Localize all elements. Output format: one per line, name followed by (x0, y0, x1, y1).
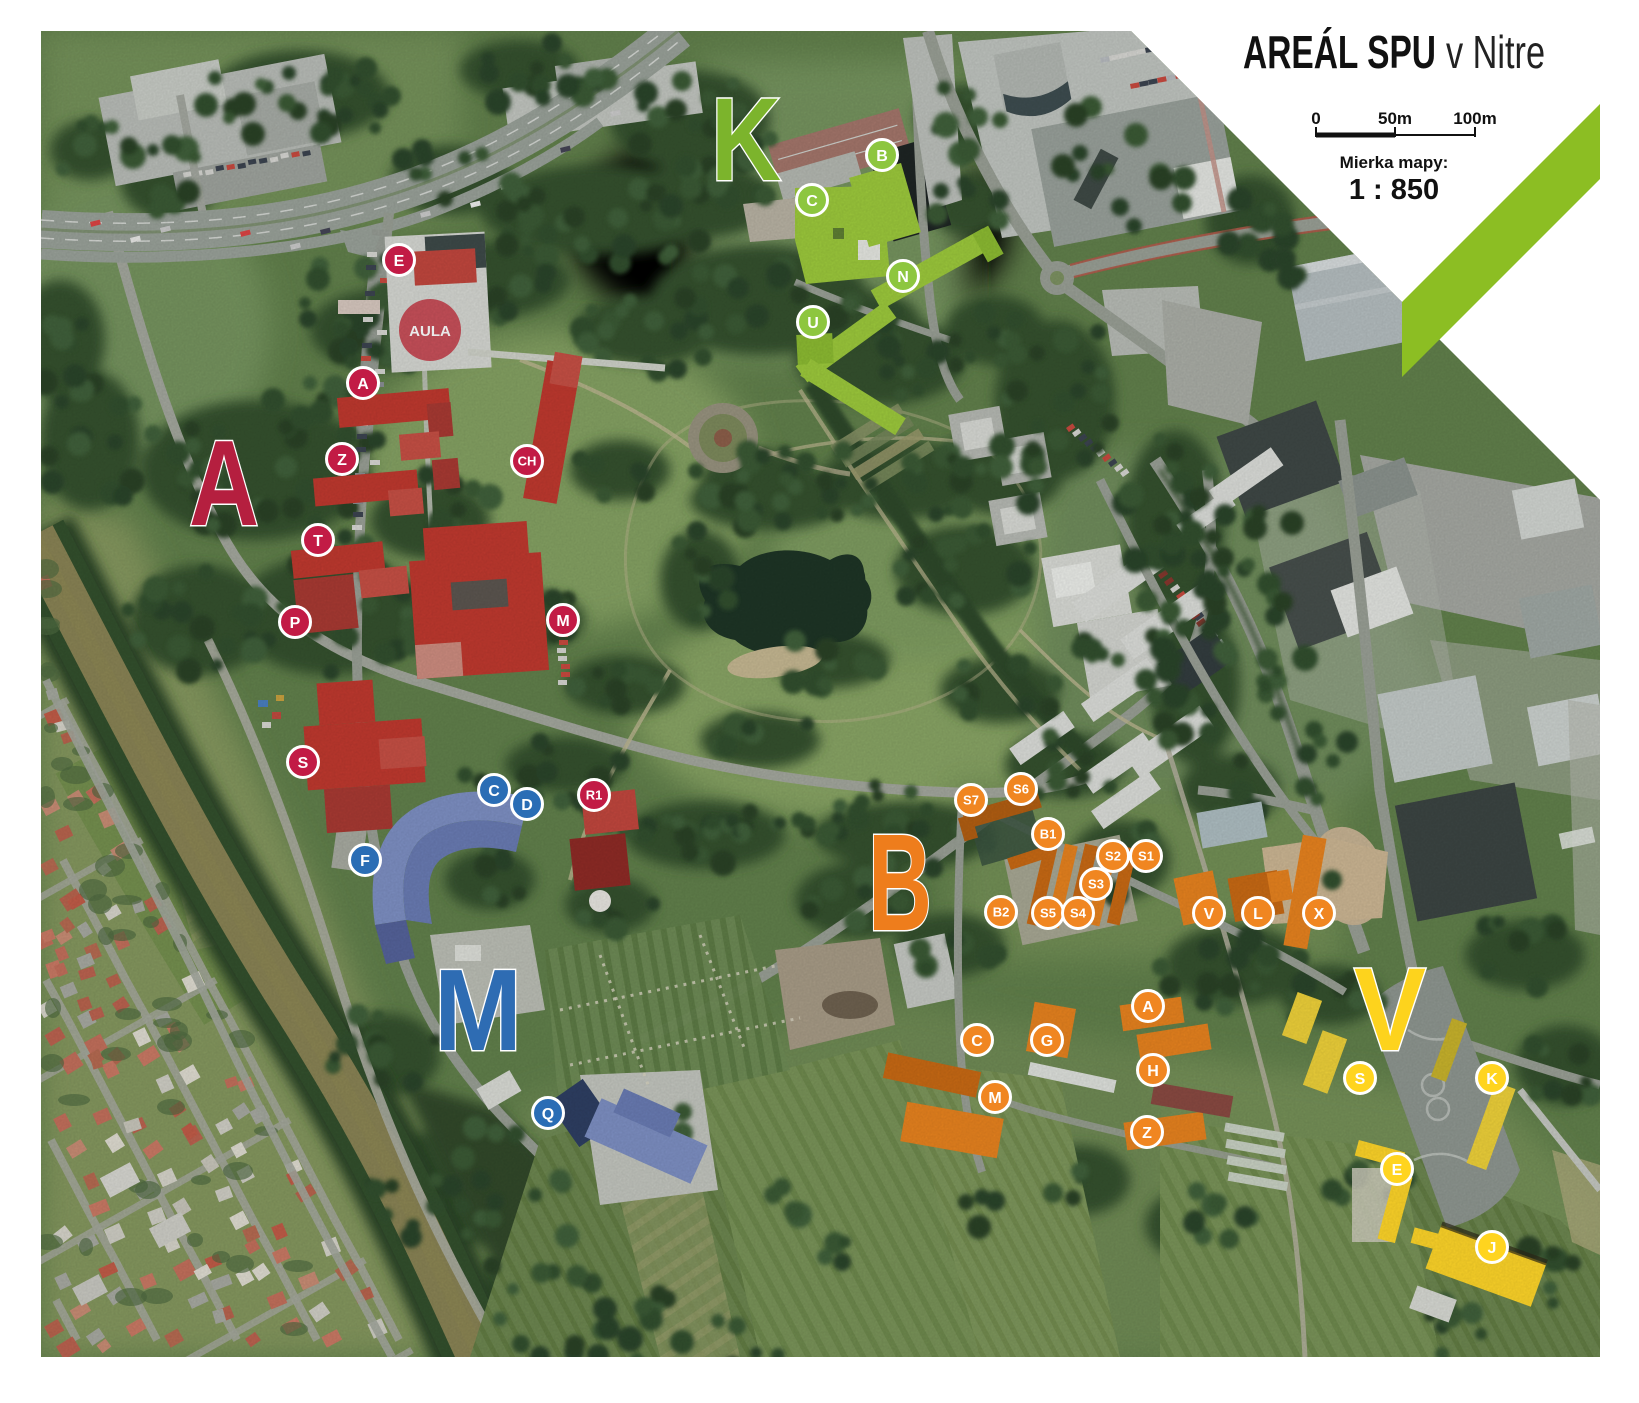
svg-text:S1: S1 (1138, 849, 1154, 864)
svg-text:C: C (806, 193, 818, 210)
svg-text:A: A (357, 376, 369, 393)
svg-text:AREÁL SPU: AREÁL SPU (1243, 26, 1436, 78)
svg-text:S7: S7 (963, 793, 979, 808)
svg-text:U: U (807, 315, 819, 332)
svg-text:S2: S2 (1105, 849, 1121, 864)
svg-text:V: V (1354, 944, 1426, 1076)
svg-text:K: K (711, 74, 781, 206)
svg-text:M: M (434, 945, 522, 1075)
svg-text:S5: S5 (1040, 906, 1056, 921)
svg-text:100m: 100m (1453, 109, 1496, 128)
svg-text:C: C (488, 783, 500, 800)
svg-text:B: B (868, 806, 932, 960)
svg-text:K: K (1486, 1071, 1498, 1088)
svg-text:P: P (290, 615, 301, 632)
svg-text:D: D (521, 797, 533, 814)
svg-text:1 : 850: 1 : 850 (1349, 174, 1439, 206)
svg-text:0: 0 (1311, 109, 1320, 128)
svg-text:S4: S4 (1070, 906, 1087, 921)
svg-text:V: V (1204, 906, 1215, 923)
svg-text:S: S (298, 755, 309, 772)
svg-text:E: E (1392, 1162, 1403, 1179)
svg-text:M: M (556, 613, 569, 630)
svg-text:CH: CH (518, 454, 537, 469)
svg-text:N: N (897, 269, 909, 286)
svg-text:B1: B1 (1040, 827, 1057, 842)
svg-text:Q: Q (542, 1106, 554, 1123)
svg-text:T: T (313, 533, 323, 550)
svg-text:J: J (1488, 1240, 1497, 1257)
svg-text:C: C (971, 1033, 983, 1050)
svg-text:v Nitre: v Nitre (1446, 26, 1545, 78)
svg-text:S3: S3 (1088, 877, 1104, 892)
svg-text:S: S (1355, 1071, 1366, 1088)
svg-text:A: A (189, 415, 259, 551)
svg-text:M: M (988, 1090, 1001, 1107)
svg-text:50m: 50m (1378, 109, 1412, 128)
svg-text:H: H (1147, 1063, 1159, 1080)
svg-text:L: L (1253, 906, 1263, 923)
svg-text:Z: Z (1142, 1125, 1152, 1142)
svg-text:G: G (1041, 1033, 1053, 1050)
svg-text:S6: S6 (1013, 782, 1029, 797)
svg-text:B: B (876, 148, 888, 165)
svg-text:B2: B2 (993, 905, 1010, 920)
svg-text:F: F (360, 853, 370, 870)
svg-text:R1: R1 (586, 788, 603, 803)
svg-text:A: A (1142, 999, 1154, 1016)
svg-text:Mierka mapy:: Mierka mapy: (1340, 153, 1449, 172)
svg-text:E: E (394, 253, 405, 270)
svg-text:Z: Z (337, 452, 347, 469)
svg-text:X: X (1314, 906, 1325, 923)
